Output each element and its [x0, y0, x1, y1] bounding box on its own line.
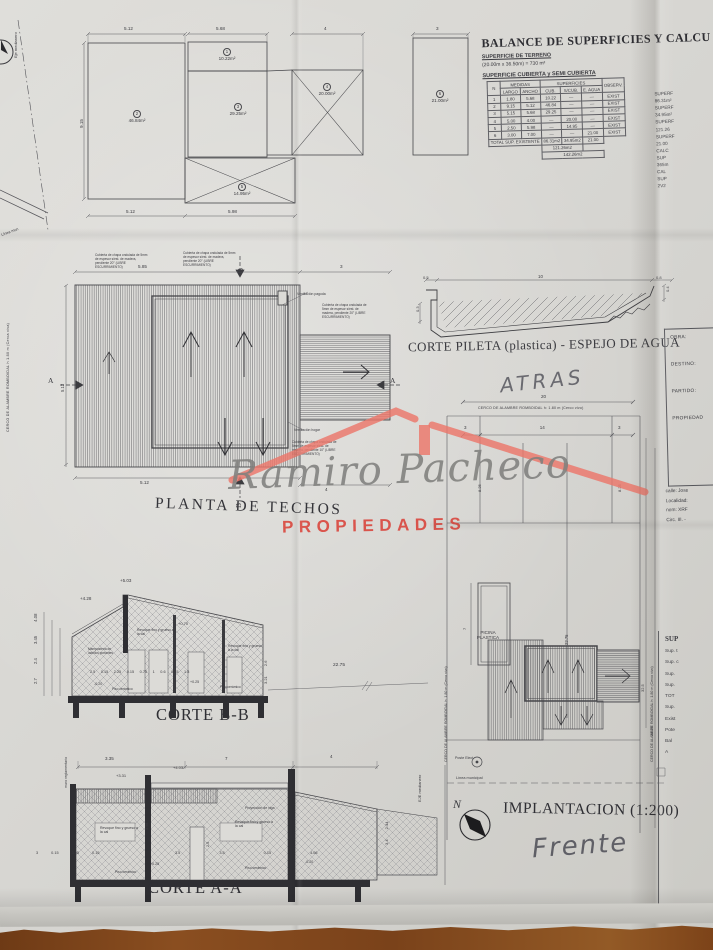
pool-label: PICINA PLASTICA [466, 630, 510, 641]
dim-label: 5.68 [216, 26, 225, 31]
summary-header: SUP [665, 635, 713, 643]
room-label: 2 46.84m² [114, 110, 160, 124]
partido-label: PARTIDO: [672, 388, 713, 394]
clipped-summary-column: SUPERF 86.31m² SUPERF 34.95m² SUPERF 121… [654, 90, 676, 190]
dim-label: 5.12 [124, 26, 133, 31]
dim-row: 3.5 3.5 0.15 4.06 [175, 851, 318, 855]
dim-label: 0.3 [416, 306, 421, 312]
room-label: 6 21.00m² [417, 90, 463, 104]
section-letter-a: A [48, 377, 53, 386]
dim-label: 5.12 [61, 384, 66, 392]
lot-boundary-lines [0, 20, 48, 230]
dim-row: 3 0.15 3.35 0.15 [36, 851, 99, 855]
dim-label: 5.98 [228, 209, 237, 214]
material-note: Revoque fino y grueso a la cal [137, 628, 175, 636]
axis-label: Eje medianero [14, 32, 19, 58]
room-number: 6 [436, 90, 444, 98]
level-label: +5.03 [120, 578, 131, 583]
room-area: 14.95m² [219, 191, 265, 197]
dim-label: 7 [225, 756, 228, 761]
aa-dimension-lines [76, 761, 379, 769]
dim-label: 3 [340, 264, 343, 269]
site-plan-title: IMPLANTACION (1:200) [503, 799, 680, 820]
col-header: OBSERV. [602, 78, 625, 93]
section-bb-title: CORTE B-B [156, 705, 250, 724]
room-number: 5 [238, 183, 246, 191]
dim-label: 3 [436, 26, 439, 31]
room-number: 3 [234, 103, 242, 111]
obra-label: OBRA: [670, 334, 713, 340]
dim-label: 22.75 [565, 635, 570, 645]
dim-label: 2.5 [206, 842, 210, 847]
dim-label: 3.35 [105, 756, 114, 761]
level-label: -0.20 [94, 682, 102, 686]
dim-label: 10 [538, 274, 543, 279]
wall-note: muro reglamentario [64, 757, 68, 788]
dim-column: 2.7 2.4 3.45 4.08 [34, 614, 39, 684]
dim-label: 22.75 [333, 663, 345, 669]
floor-note: Piso cerámico [115, 870, 136, 874]
dim-label: 0.5 [423, 276, 429, 281]
summary-lines: Sup. t Sup. c Sup. Sup. TOT Sup. Exist P… [665, 646, 713, 759]
fence-label: CERCO DE ALAMBRE ROMBOIDAL h: 1.80 m (Ce… [650, 666, 654, 762]
compass-icon [0, 40, 13, 64]
room-label: 5 14.95m² [219, 183, 265, 197]
level-label: +0.25 [190, 680, 199, 684]
dim-label: 5.12 [140, 480, 149, 485]
balance-panel: BALANCE DE SUPERFICIES Y CALCU SUPERFICI… [481, 30, 713, 161]
room-area: 20.00m² [304, 91, 350, 97]
section-aa-title: CORTE A-A [148, 878, 243, 897]
pool-section-drawing [402, 272, 707, 344]
dim-column: 3.21 2.6 [264, 661, 269, 684]
room-number: 1 [223, 48, 231, 56]
paper-edge [0, 903, 713, 927]
roof-note: Cubierta de chapa ondulada de 5mm de esp… [183, 251, 237, 267]
dim-label: 4 [324, 26, 327, 31]
dim-label: 32.5 [641, 684, 646, 692]
room-number: 2 [133, 110, 141, 118]
room-area: 29.25m² [215, 111, 261, 117]
floor-plan-dimension-lines [82, 32, 470, 218]
level-label: +0.70 [178, 622, 188, 627]
room-area: 10.22m² [204, 56, 250, 62]
dim-label: 5.12 [126, 209, 135, 214]
dim-column: 3.4 2.44 [385, 822, 390, 845]
section-aa-drawing [25, 745, 465, 913]
col-header: N [487, 81, 501, 96]
room-area: 21.00m² [417, 98, 463, 104]
material-note: Revoque fino y grueso a la cal [235, 820, 275, 828]
room-label: 3 29.25m² [215, 103, 261, 117]
destino-label: DESTINO: [671, 361, 713, 367]
room-area: 46.84m² [114, 118, 160, 124]
floor-note: Piso cerámico [245, 866, 266, 870]
fence-label: CERCO DE ALAMBRE ROMBOIDAL h 1.80 m (Cer… [6, 323, 10, 432]
axis-label: EJE medianero [418, 775, 423, 802]
dim-label: 4 [330, 754, 333, 759]
dim-row: 2.5 0.15 2.25 0.15 0.75 1 0.6 0.15 1.8 [90, 670, 189, 674]
floor-note: Piso cerámico [220, 686, 241, 690]
dim-label: 0.4 [666, 286, 671, 292]
level-label: +4.28 [80, 596, 91, 601]
dim-label: 5.85 [138, 264, 147, 269]
site-building-footprint [488, 640, 639, 740]
section-letter-b: B [237, 268, 246, 273]
room-label: 1 10.22m² [204, 48, 250, 62]
material-note: Revoque fino y grueso a la cal [100, 826, 140, 834]
dim-label: 9.15 [79, 119, 84, 128]
level-label: +0.25 [150, 862, 159, 866]
material-note: Mampostería de ladrillos portantes [88, 648, 118, 656]
level-label: +4.03 [173, 766, 183, 771]
roof-note: Cubierta de chapa ondulada de 5mm de esp… [322, 303, 369, 319]
material-note: Revoque fino y grueso a la cal [228, 644, 264, 652]
blueprint-sheet-photo: 1 10.22m² 2 46.84m² 3 29.25m² 4 20.00m² … [0, 0, 713, 950]
beam-note: Proyección de viga [245, 806, 289, 810]
propiedad-label: PROPIEDAD [672, 415, 713, 421]
level-label: -0.20 [305, 860, 313, 864]
title-block-obra: OBRA: DESTINO: PARTIDO: PROPIEDAD [664, 327, 713, 486]
dim-label: 0.8 [656, 276, 662, 281]
surface-table: N MEDIDAS SUPERFICIES OBSERV. LARGO ANCH… [487, 77, 627, 161]
room-label: 4 20.00m² [304, 83, 350, 97]
vent-label: Ventilación pagoda [297, 292, 327, 296]
section-letter-a: A [390, 377, 395, 386]
bb-structure [68, 595, 268, 718]
watermark-subtitle: PROPIEDADES [282, 514, 467, 537]
level-label: +3.31 [116, 774, 126, 779]
room-number: 4 [323, 83, 331, 91]
dim-label: 3.98 [145, 823, 149, 830]
floor-note: Piso cerámico [112, 688, 133, 692]
